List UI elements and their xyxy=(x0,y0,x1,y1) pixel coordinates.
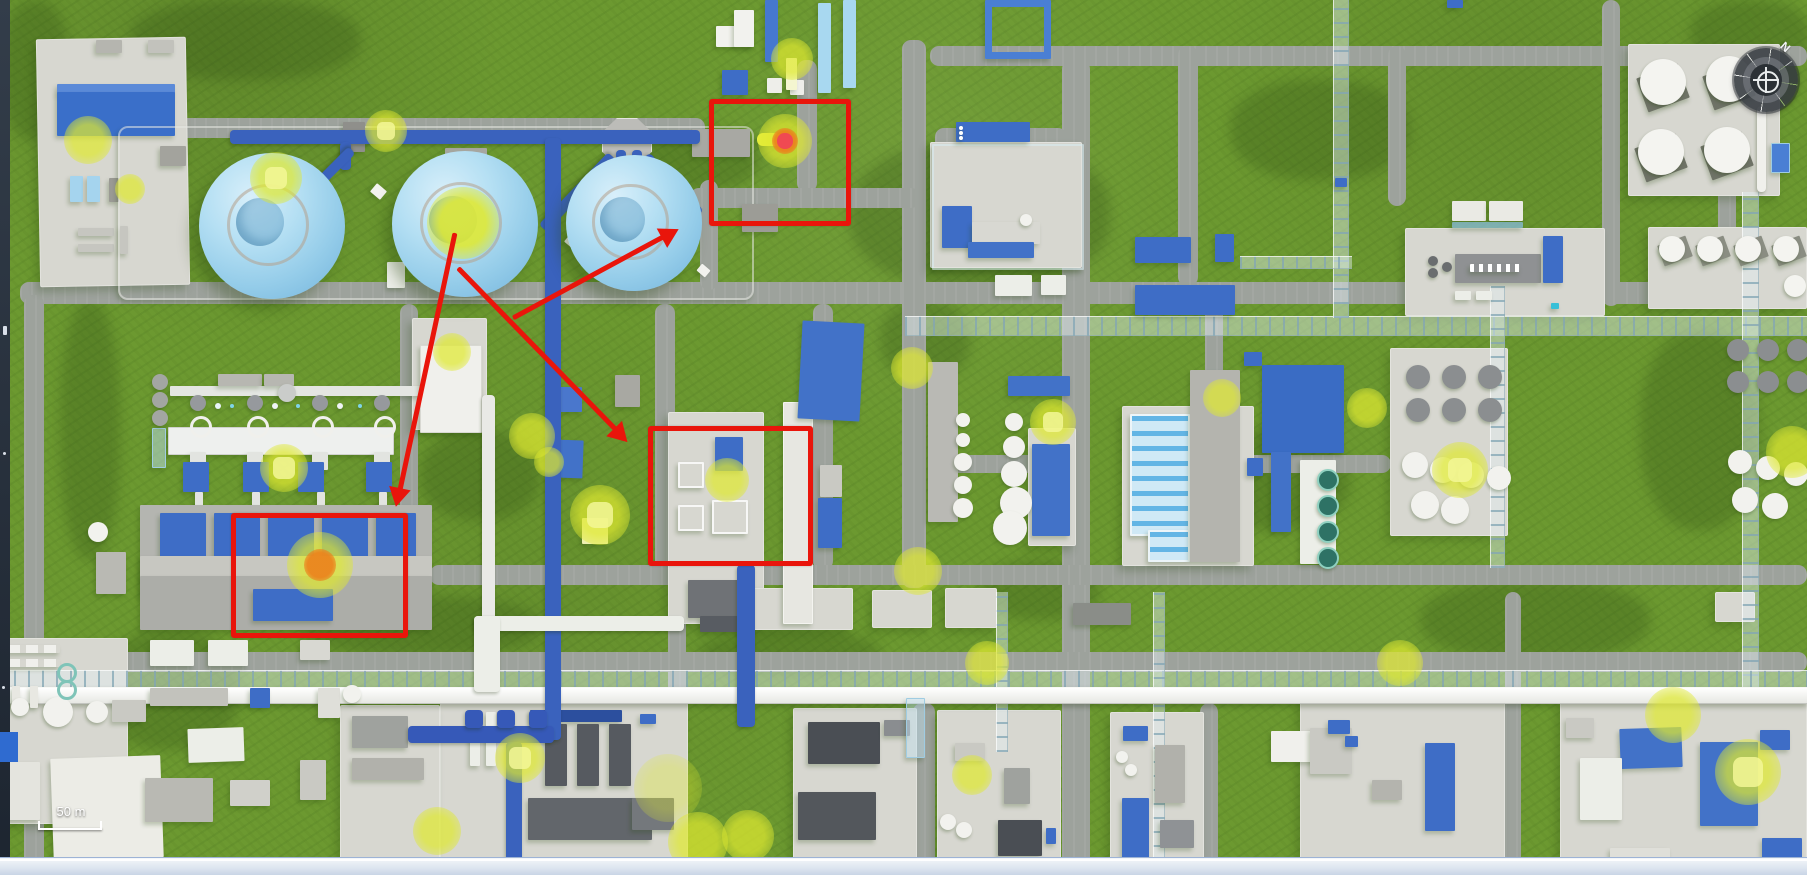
building-block xyxy=(767,78,782,93)
building-block xyxy=(1135,237,1191,263)
building-block xyxy=(818,498,842,548)
building-block xyxy=(1335,178,1347,187)
equipment-circle xyxy=(959,136,963,140)
heat-spot xyxy=(365,110,407,152)
building-block xyxy=(1470,264,1520,272)
heat-spot xyxy=(115,174,145,204)
equipment-circle xyxy=(190,416,212,438)
facility-monitoring-app: N 50 m xyxy=(0,0,1807,875)
equipment-circle xyxy=(247,395,263,411)
building-block xyxy=(1041,275,1066,295)
equipment-circle xyxy=(152,392,168,408)
equipment-circle xyxy=(358,404,362,408)
equipment-circle xyxy=(1787,339,1807,361)
pipe-rack xyxy=(1490,286,1505,568)
building-block xyxy=(70,176,83,202)
equipment-circle xyxy=(374,416,396,438)
building-block xyxy=(797,320,864,421)
building-block xyxy=(183,462,209,492)
building-block xyxy=(640,714,656,724)
equipment-circle xyxy=(1441,496,1469,524)
equipment-circle xyxy=(190,395,206,411)
heat-spot xyxy=(952,755,992,795)
heat-spot xyxy=(1203,379,1241,417)
heat-spot xyxy=(570,485,630,545)
pipe xyxy=(465,710,483,728)
building-block xyxy=(1008,376,1070,396)
equipment-circle xyxy=(954,476,972,494)
heat-spot xyxy=(64,116,112,164)
building-block xyxy=(1580,758,1622,820)
building-block xyxy=(1155,745,1185,803)
building-block xyxy=(1247,458,1263,476)
equipment-circle xyxy=(1773,236,1799,262)
building-block xyxy=(995,275,1032,296)
pipe xyxy=(497,710,515,728)
compass[interactable]: N xyxy=(1734,48,1798,112)
road xyxy=(1388,46,1406,206)
building-block xyxy=(230,780,270,806)
window-bottom-bar xyxy=(0,857,1807,875)
building-block xyxy=(1135,285,1235,315)
equipment-circle xyxy=(1478,365,1502,389)
pipeline-white-band xyxy=(0,687,1807,704)
pipe xyxy=(1757,106,1766,192)
equipment-circle xyxy=(1317,521,1339,543)
equipment-circle xyxy=(1125,764,1137,776)
building-block xyxy=(1262,365,1344,453)
equipment-circle xyxy=(1757,339,1779,361)
building-block xyxy=(78,244,114,252)
equipment-circle xyxy=(215,403,221,409)
equipment-circle xyxy=(1411,491,1439,519)
pipe xyxy=(737,565,755,727)
equipment-circle xyxy=(1003,436,1025,458)
equipment-circle xyxy=(1487,466,1511,490)
building-block xyxy=(1566,718,1594,738)
building-block xyxy=(1771,143,1790,173)
building-block xyxy=(152,428,166,468)
building-block xyxy=(1046,828,1056,844)
building-block xyxy=(928,362,958,522)
building-block xyxy=(808,722,880,764)
building-block xyxy=(818,3,831,93)
concrete-pad xyxy=(945,588,997,628)
equipment-circle xyxy=(1732,487,1758,513)
building-block xyxy=(722,70,748,95)
equipment-circle xyxy=(959,126,963,130)
heat-spot xyxy=(250,152,302,204)
heat-spot xyxy=(894,547,942,595)
heat-spot xyxy=(260,444,308,492)
annotation-rect xyxy=(709,99,851,226)
equipment-circle xyxy=(312,395,328,411)
equipment-circle xyxy=(1317,495,1339,517)
heat-spot xyxy=(1645,687,1701,743)
concrete-pad xyxy=(1300,688,1505,875)
building-block xyxy=(1452,201,1486,221)
sphere-vent xyxy=(600,197,645,242)
equipment-circle xyxy=(1640,59,1686,105)
pipe-rack xyxy=(1240,256,1352,269)
annotation-rect xyxy=(231,513,408,638)
building-block xyxy=(998,820,1042,856)
equipment-circle xyxy=(1402,452,1428,478)
building-block xyxy=(1476,291,1492,300)
equipment-circle xyxy=(1406,398,1430,422)
pipe xyxy=(529,710,547,728)
building-block xyxy=(985,0,1051,59)
building-block xyxy=(1123,726,1148,741)
equipment-circle xyxy=(1727,371,1749,393)
equipment-circle xyxy=(1787,371,1807,393)
building-block xyxy=(352,716,408,748)
equipment-circle xyxy=(43,697,73,727)
building-block xyxy=(208,640,248,666)
building-block xyxy=(1271,452,1291,532)
building-block xyxy=(387,262,405,288)
building-block xyxy=(906,698,925,758)
equipment-circle xyxy=(1784,275,1806,297)
building-block xyxy=(932,144,1084,270)
building-block xyxy=(96,40,122,53)
building-block xyxy=(609,724,631,786)
equipment-circle xyxy=(247,416,269,438)
equipment-circle xyxy=(1659,236,1685,262)
annotation-rect xyxy=(648,426,813,566)
equipment-circle xyxy=(343,685,361,703)
building-block xyxy=(352,758,424,780)
building-block xyxy=(843,0,856,88)
equipment-circle xyxy=(278,384,296,402)
heat-spot xyxy=(1432,442,1488,498)
building-block xyxy=(300,760,326,800)
pipe xyxy=(230,130,700,144)
building-block xyxy=(187,727,244,763)
building-block xyxy=(160,146,186,166)
building-block xyxy=(318,688,340,718)
heat-spot xyxy=(1347,388,1387,428)
equipment-circle xyxy=(1001,461,1027,487)
facility-map-canvas[interactable] xyxy=(0,0,1807,875)
building-block xyxy=(150,688,228,706)
equipment-circle xyxy=(337,403,343,409)
building-block xyxy=(1160,820,1194,848)
equipment-circle xyxy=(940,814,956,830)
building-block xyxy=(1452,222,1523,228)
terrain-shade-patch xyxy=(1420,580,1650,660)
building-block xyxy=(956,122,1030,142)
compass-crosshair-icon xyxy=(1753,67,1779,93)
concrete-pad xyxy=(872,590,932,628)
building-block xyxy=(1215,234,1234,262)
terrain-shade-patch xyxy=(1230,80,1410,180)
equipment-circle xyxy=(374,395,390,411)
map-edge-blue-marker xyxy=(0,732,18,762)
equipment-circle xyxy=(954,453,972,471)
pipe-rack xyxy=(905,316,1807,336)
heat-spot xyxy=(534,447,564,477)
building-block xyxy=(1004,768,1030,804)
equipment-circle xyxy=(1428,268,1438,278)
building-block xyxy=(1447,0,1463,8)
sphere-vent xyxy=(236,198,284,246)
heat-spot xyxy=(1030,399,1076,445)
map-scale: 50 m xyxy=(36,804,106,836)
building-block xyxy=(145,778,213,822)
equipment-circle xyxy=(1638,129,1684,175)
pipe-rack xyxy=(1333,0,1349,318)
equipment-circle xyxy=(956,413,970,427)
building-block xyxy=(78,228,114,236)
heat-spot xyxy=(427,187,499,259)
equipment-circle xyxy=(1406,365,1430,389)
equipment-circle xyxy=(152,410,168,426)
building-block xyxy=(615,375,640,407)
equipment-circle xyxy=(1727,339,1749,361)
building-block xyxy=(300,640,330,660)
equipment-circle xyxy=(1478,398,1502,422)
building-block xyxy=(734,10,754,47)
building-block xyxy=(96,552,126,594)
building-block xyxy=(8,659,60,667)
equipment-circle xyxy=(1428,256,1438,266)
building-block xyxy=(1310,728,1352,774)
heat-spot xyxy=(413,807,461,855)
storage-sphere xyxy=(566,155,702,291)
building-block xyxy=(218,374,262,386)
building-block xyxy=(1328,720,1350,734)
equipment-circle xyxy=(1442,398,1466,422)
equipment-circle xyxy=(953,498,973,518)
scale-line xyxy=(38,828,102,830)
building-block xyxy=(1425,743,1455,831)
building-block xyxy=(1032,444,1070,536)
building-block xyxy=(1122,798,1149,858)
equipment-circle xyxy=(1442,365,1466,389)
building-block xyxy=(1073,603,1131,625)
building-block xyxy=(112,700,146,722)
equipment-circle xyxy=(152,374,168,390)
heat-spot xyxy=(1715,739,1781,805)
heat-spot xyxy=(433,333,471,371)
building-block xyxy=(1455,291,1471,300)
equipment-circle xyxy=(57,680,77,700)
pipe-rack xyxy=(1742,192,1759,690)
heat-spot xyxy=(634,754,702,822)
road xyxy=(430,565,1807,585)
equipment-circle xyxy=(959,131,963,135)
equipment-circle xyxy=(1728,450,1752,474)
road xyxy=(0,652,1807,672)
building-block xyxy=(160,513,206,557)
heat-spot xyxy=(495,733,545,783)
building-block xyxy=(1372,780,1402,800)
equipment-circle xyxy=(312,416,334,438)
building-block xyxy=(1244,352,1262,366)
equipment-circle xyxy=(11,698,29,716)
equipment-circle xyxy=(1757,371,1779,393)
equipment-circle xyxy=(1317,469,1339,491)
building-block xyxy=(8,645,60,653)
building-block xyxy=(250,688,270,708)
equipment-circle xyxy=(1116,751,1128,763)
heat-spot xyxy=(722,810,774,862)
equipment-circle xyxy=(1005,413,1023,431)
building-block xyxy=(87,176,100,202)
building-block xyxy=(148,40,174,53)
heat-spot xyxy=(891,347,933,389)
equipment-circle xyxy=(993,511,1027,545)
equipment-circle xyxy=(1697,236,1723,262)
building-block xyxy=(1551,303,1559,309)
building-block xyxy=(798,792,876,840)
building-block xyxy=(30,686,38,708)
equipment-circle xyxy=(272,403,278,409)
road xyxy=(902,40,926,588)
building-block xyxy=(150,640,194,666)
heat-spot xyxy=(965,641,1009,685)
equipment-circle xyxy=(230,404,234,408)
building-block xyxy=(1489,201,1523,221)
equipment-circle xyxy=(956,822,972,838)
equipment-circle xyxy=(1735,236,1761,262)
pipe xyxy=(474,616,500,692)
building-block xyxy=(577,724,599,786)
equipment-circle xyxy=(1704,127,1750,173)
building-block xyxy=(1345,736,1358,747)
building-block xyxy=(820,465,842,497)
equipment-circle xyxy=(88,522,108,542)
equipment-circle xyxy=(1442,262,1452,272)
equipment-circle xyxy=(296,404,300,408)
equipment-circle xyxy=(956,433,970,447)
heat-spot xyxy=(1377,640,1423,686)
road xyxy=(1505,592,1521,875)
building-block xyxy=(700,616,742,632)
pipe xyxy=(474,616,684,631)
equipment-circle xyxy=(1317,547,1339,569)
building-block xyxy=(1130,414,1190,536)
equipment-circle xyxy=(86,701,108,723)
scale-label: 50 m xyxy=(36,804,106,819)
heat-spot xyxy=(771,38,813,80)
equipment-circle xyxy=(1762,493,1788,519)
building-block xyxy=(1543,236,1563,283)
terrain-shade-patch xyxy=(60,300,120,560)
equipment-circle xyxy=(1020,214,1032,226)
building-block xyxy=(1148,530,1190,562)
pipe xyxy=(482,395,495,620)
